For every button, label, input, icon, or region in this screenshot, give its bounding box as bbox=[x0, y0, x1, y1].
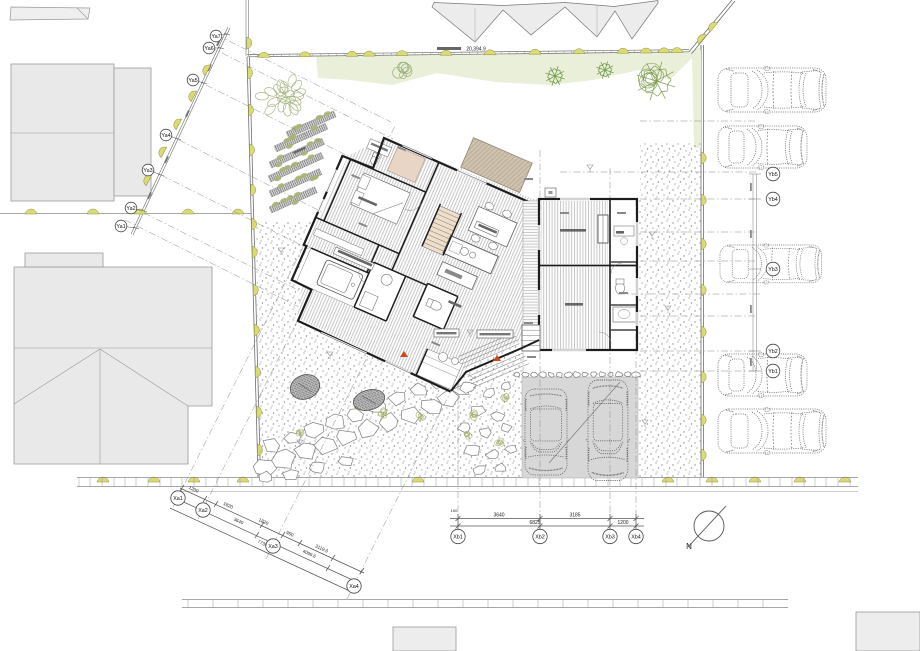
svg-text:Xb4: Xb4 bbox=[631, 535, 641, 541]
svg-text:Ya1: Ya1 bbox=[116, 224, 125, 230]
svg-text:3640: 3640 bbox=[233, 517, 245, 526]
svg-text:Yb3: Yb3 bbox=[768, 267, 778, 273]
svg-text:100: 100 bbox=[451, 508, 458, 513]
svg-text:Ya5: Ya5 bbox=[188, 78, 197, 84]
svg-text:Ya3: Ya3 bbox=[143, 168, 152, 174]
svg-text:Ya6: Ya6 bbox=[204, 46, 213, 52]
svg-text:Yb1: Yb1 bbox=[768, 369, 778, 375]
svg-text:Xb2: Xb2 bbox=[535, 535, 545, 541]
svg-text:950: 950 bbox=[285, 530, 294, 538]
svg-text:Yb4: Yb4 bbox=[768, 197, 778, 203]
svg-text:3185: 3185 bbox=[569, 513, 580, 519]
svg-text:3640: 3640 bbox=[493, 513, 504, 519]
svg-text:Xa4: Xa4 bbox=[349, 584, 359, 590]
svg-text:3119.6: 3119.6 bbox=[314, 543, 329, 553]
svg-text:Ya2: Ya2 bbox=[126, 206, 135, 212]
svg-text:Xa3: Xa3 bbox=[268, 544, 278, 550]
svg-text:Ya4: Ya4 bbox=[161, 133, 170, 139]
svg-text:Ya7: Ya7 bbox=[211, 34, 220, 40]
svg-text:Xa2: Xa2 bbox=[198, 508, 208, 514]
svg-text:1200: 1200 bbox=[617, 520, 628, 526]
svg-text:N: N bbox=[686, 542, 692, 551]
svg-text:Xa1: Xa1 bbox=[173, 496, 183, 502]
svg-text:Yb5: Yb5 bbox=[768, 172, 778, 178]
svg-text:Yb2: Yb2 bbox=[768, 349, 778, 355]
svg-text:6825: 6825 bbox=[529, 520, 540, 526]
svg-text:Xb1: Xb1 bbox=[453, 535, 463, 541]
svg-text:Xb3: Xb3 bbox=[605, 535, 615, 541]
svg-text:20,394.9: 20,394.9 bbox=[466, 47, 486, 53]
